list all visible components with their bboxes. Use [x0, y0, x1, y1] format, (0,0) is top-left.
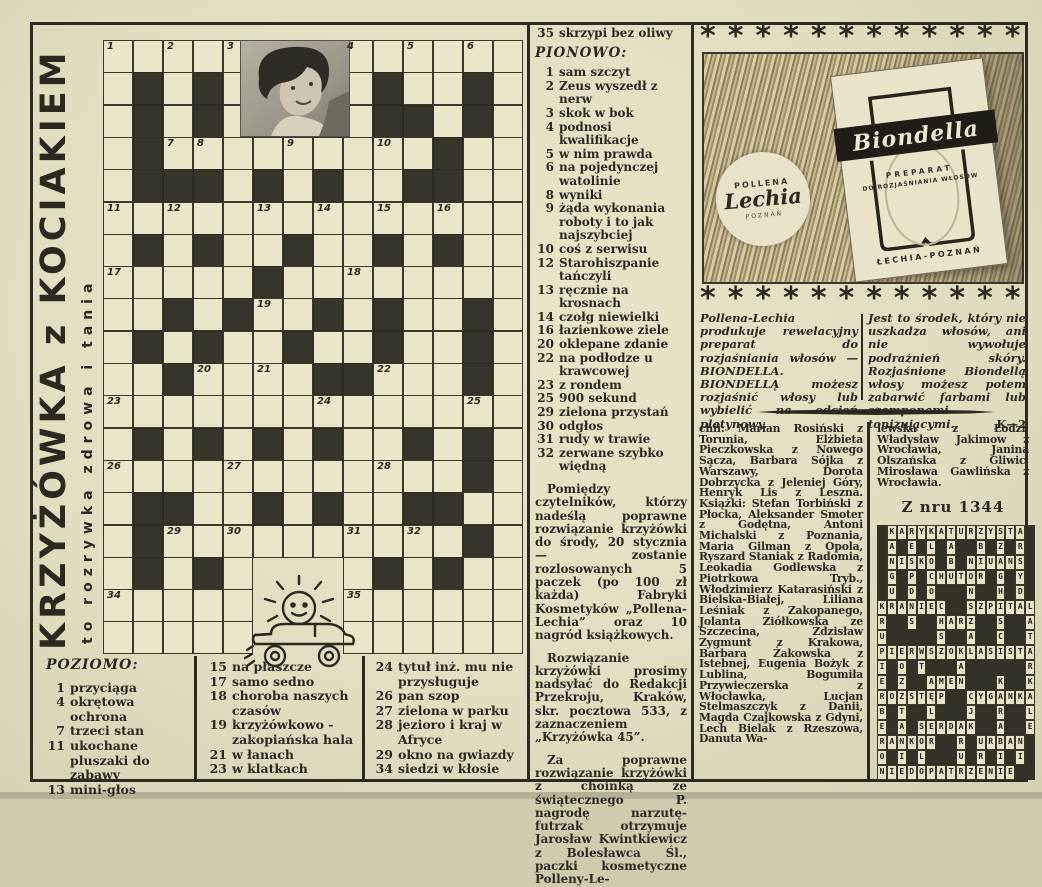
white-cell: [283, 492, 313, 525]
solution-letter-cell: K: [907, 735, 917, 750]
white-cell: [403, 557, 433, 590]
solution-black-cell: [926, 615, 936, 630]
clue-text: rudy w trawie: [559, 433, 687, 447]
white-cell: [313, 137, 343, 170]
solution-letter-cell: N: [1015, 735, 1025, 750]
solution-black-cell: [1015, 720, 1025, 735]
clue-item: 32zerwane szybko więdną: [535, 447, 687, 474]
black-cell: [133, 72, 163, 105]
solution-letter-cell: E: [926, 600, 936, 615]
cell-number: 19: [257, 300, 271, 310]
black-cell: [133, 428, 163, 461]
clue-item: 23w klatkach: [208, 762, 358, 777]
solution-black-cell: [986, 720, 996, 735]
clue-item: 8wyniki: [535, 189, 687, 203]
solution-letter-cell: C: [936, 600, 946, 615]
black-cell: [313, 428, 343, 461]
black-cell: [193, 72, 223, 105]
solution-letter-cell: L: [966, 645, 976, 660]
star-icon: *: [949, 19, 977, 54]
cell-number: 30: [227, 527, 241, 537]
black-cell: [343, 363, 373, 396]
black-cell: [253, 266, 283, 299]
white-cell: [343, 234, 373, 267]
solution-black-cell: [1015, 705, 1025, 720]
solution-black-cell: [907, 705, 917, 720]
solution-black-cell: [877, 525, 887, 540]
solution-letter-cell: S: [966, 600, 976, 615]
white-cell: [103, 428, 133, 461]
white-cell: [463, 557, 493, 590]
white-cell: [163, 621, 193, 654]
solution-black-cell: [946, 690, 956, 705]
solution-letter-cell: Z: [966, 615, 976, 630]
solution-black-cell: [946, 735, 956, 750]
clue-number: 23: [208, 762, 232, 777]
white-cell: [283, 298, 313, 331]
white-cell: [433, 331, 463, 364]
solution-black-cell: [1025, 525, 1035, 540]
solution-black-cell: [1005, 720, 1015, 735]
solution-row: UDONHD: [877, 585, 1035, 600]
white-cell: [133, 589, 163, 622]
cell-number: 3: [227, 42, 234, 52]
black-cell: [163, 363, 193, 396]
biondella-ad-photo: POLLENA Lechia POZNAŃ Biondella PREPARAT…: [702, 52, 1024, 284]
solution-black-cell: [917, 585, 927, 600]
white-cell: [343, 202, 373, 235]
solution-letter-cell: Z: [897, 690, 907, 705]
clue-text: łazienkowe ziele: [559, 324, 687, 338]
solution-letter-cell: O: [946, 645, 956, 660]
white-cell: [223, 363, 253, 396]
solution-letter-cell: R: [966, 525, 976, 540]
solution-black-cell: [986, 615, 996, 630]
white-cell: [193, 395, 223, 428]
title-subtitle: to rozrywka zdrowa i tania: [80, 50, 96, 650]
white-cell: [433, 525, 463, 558]
solution-black-cell: [897, 615, 907, 630]
star-icon: *: [728, 19, 756, 54]
solution-black-cell: [887, 630, 897, 645]
solution-letter-cell: O: [926, 585, 936, 600]
solution-letter-cell: A: [966, 630, 976, 645]
white-cell: [403, 137, 433, 170]
clue-text: choroba naszych czasów: [232, 689, 358, 718]
solution-black-cell: [976, 585, 986, 600]
black-cell: [133, 137, 163, 170]
clue-number: 1: [535, 66, 559, 80]
white-cell: [403, 621, 433, 654]
clue-item: 22na podłodze u krawcowej: [535, 352, 687, 379]
solution-black-cell: [966, 540, 976, 555]
clue-item: 27zielona w parku: [374, 704, 524, 719]
solution-letter-cell: A: [1015, 525, 1025, 540]
clue-text: okno na gwiazdy: [398, 748, 524, 763]
solution-letter-cell: Ę: [926, 690, 936, 705]
clue-item: 1sam szczyt: [535, 66, 687, 80]
clue-number: 15: [208, 660, 232, 675]
black-cell: [403, 428, 433, 461]
clue-text: zielona w parku: [398, 704, 524, 719]
solution-letter-cell: Z: [976, 525, 986, 540]
clue-text: ręcznie na krosnach: [559, 284, 687, 311]
solution-letter-cell: K: [956, 645, 966, 660]
white-cell: [163, 266, 193, 299]
black-cell: [373, 234, 403, 267]
solution-letter-cell: L: [926, 705, 936, 720]
solution-letter-cell: O: [877, 750, 887, 765]
black-cell: [193, 331, 223, 364]
pionowo-clues: 1sam szczyt2Zeus wyszedł z nerw3skok w b…: [535, 66, 687, 474]
clue-text: wyniki: [559, 189, 687, 203]
solution-letter-cell: E: [1005, 765, 1015, 780]
solution-row: KARYKATURZYSTA: [877, 525, 1035, 540]
star-icon: *: [811, 281, 839, 316]
solution-row: RANKORRURBAN: [877, 735, 1035, 750]
white-cell: [343, 395, 373, 428]
clue-number: 29: [374, 748, 398, 763]
black-cell: [463, 298, 493, 331]
cell-number: 35: [347, 591, 361, 601]
solution-black-cell: [1005, 540, 1015, 555]
solution-letter-cell: A: [996, 555, 1006, 570]
solution-letter-cell: R: [907, 645, 917, 660]
contest-paragraph: Pomiędzy czytelników, którzy nadeślą pop…: [535, 483, 687, 643]
solution-letter-cell: R: [907, 525, 917, 540]
solution-letter-cell: R: [956, 765, 966, 780]
white-cell: [403, 234, 433, 267]
clue-number: 18: [208, 689, 232, 718]
solution-black-cell: [956, 690, 966, 705]
solution-black-cell: [907, 630, 917, 645]
white-cell: [463, 589, 493, 622]
solution-letter-cell: A: [936, 765, 946, 780]
solution-letter-cell: K: [926, 525, 936, 540]
white-cell: [403, 72, 433, 105]
clue-number: 27: [374, 704, 398, 719]
white-cell: [373, 621, 403, 654]
clue-item: 31rudy w trawie: [535, 433, 687, 447]
solution-letter-cell: A: [996, 690, 1006, 705]
solution-letter-cell: A: [887, 735, 897, 750]
solution-letter-cell: U: [986, 555, 996, 570]
clue-number: 10: [535, 243, 559, 257]
solution-black-cell: [917, 570, 927, 585]
star-icon: *: [783, 19, 811, 54]
solution-letter-cell: A: [926, 675, 936, 690]
black-cell: [313, 169, 343, 202]
white-cell: [103, 169, 133, 202]
solution-row: ROZSTĘPCYGANKA: [877, 690, 1035, 705]
star-row-bottom: ************: [700, 286, 1026, 306]
title-main: KRZYŻÓWKA z KOCIAKIEM: [34, 50, 74, 650]
solution-black-cell: [966, 660, 976, 675]
cell-number: 20: [197, 365, 211, 375]
poziomo-last-clue: 35skrzypi bez oliwy: [535, 27, 687, 41]
solution-black-cell: [897, 585, 907, 600]
solution-letter-cell: E: [946, 675, 956, 690]
white-cell: [493, 525, 523, 558]
solution-letter-cell: D: [946, 720, 956, 735]
solution-letter-cell: Z: [996, 540, 1006, 555]
solution-letter-cell: N: [1005, 690, 1015, 705]
solution-row: IOTAR: [877, 660, 1035, 675]
cell-number: 21: [257, 365, 271, 375]
solution-letter-cell: N: [986, 765, 996, 780]
pionowo-heading: PIONOWO:: [535, 47, 687, 61]
cell-number: 34: [107, 591, 121, 601]
solution-letter-cell: W: [917, 645, 927, 660]
white-cell: [163, 395, 193, 428]
solution-black-cell: [936, 735, 946, 750]
black-cell: [253, 169, 283, 202]
solution-letter-cell: L: [926, 540, 936, 555]
white-cell: [253, 525, 283, 558]
solution-letter-cell: I: [996, 600, 1006, 615]
solution-letter-cell: A: [996, 720, 1006, 735]
solution-letter-cell: K: [1015, 690, 1025, 705]
white-cell: [403, 589, 433, 622]
solution-black-cell: [946, 630, 956, 645]
solution-black-cell: [917, 630, 927, 645]
black-cell: [163, 492, 193, 525]
white-cell: [103, 298, 133, 331]
clue-number: 31: [535, 433, 559, 447]
white-cell: [193, 525, 223, 558]
solution-letter-cell: S: [936, 630, 946, 645]
solution-row: NIEDOPATRZENIE: [877, 765, 1035, 780]
pionowo-column: 35skrzypi bez oliwy PIONOWO: 1sam szczyt…: [535, 27, 687, 887]
clue-item: 25900 sekund: [535, 392, 687, 406]
white-cell: [193, 202, 223, 235]
solution-black-cell: [887, 720, 897, 735]
solution-black-cell: [1015, 675, 1025, 690]
white-cell: [493, 395, 523, 428]
clue-item: 29zielona przystań: [535, 406, 687, 420]
solution-letter-cell: Y: [1015, 570, 1025, 585]
solution-black-cell: [976, 660, 986, 675]
black-cell: [463, 525, 493, 558]
clue-number: 14: [535, 311, 559, 325]
white-cell: [163, 234, 193, 267]
clue-text: żąda wykonania roboty i to jak najszybci…: [559, 202, 687, 243]
white-cell: [343, 492, 373, 525]
star-icon: *: [894, 19, 922, 54]
solution-black-cell: [986, 570, 996, 585]
clue-separator: [194, 656, 197, 782]
solution-letter-cell: Z: [897, 675, 907, 690]
solution-letter-cell: E: [877, 675, 887, 690]
solution-letter-cell: S: [996, 525, 1006, 540]
solution-letter-cell: A: [887, 540, 897, 555]
solution-letter-cell: N: [956, 675, 966, 690]
solution-black-cell: [1015, 660, 1025, 675]
solution-letter-cell: E: [907, 540, 917, 555]
solution-black-cell: [986, 750, 996, 765]
white-cell: [493, 363, 523, 396]
white-cell: [223, 266, 253, 299]
black-cell: [193, 234, 223, 267]
white-cell: [283, 395, 313, 428]
white-cell: [373, 589, 403, 622]
solution-black-cell: [1005, 705, 1015, 720]
solution-letter-cell: I: [1015, 750, 1025, 765]
cell-number: 27: [227, 462, 241, 472]
solution-black-cell: [917, 540, 927, 555]
cell-number: 31: [347, 527, 361, 537]
solution-letter-cell: K: [917, 555, 927, 570]
solution-letter-cell: G: [996, 570, 1006, 585]
clue-item: 29okno na gwiazdy: [374, 748, 524, 763]
clue-text: skok w bok: [559, 107, 687, 121]
cell-number: 18: [347, 268, 361, 278]
solution-black-cell: [887, 615, 897, 630]
white-cell: [433, 460, 463, 493]
black-cell: [133, 557, 163, 590]
white-cell: [373, 40, 403, 73]
solution-letter-cell: I: [887, 645, 897, 660]
solution-letter-cell: R: [996, 705, 1006, 720]
white-cell: [403, 460, 433, 493]
solution-row: NISKOBNIUANS: [877, 555, 1035, 570]
white-cell: [373, 428, 403, 461]
white-cell: [193, 460, 223, 493]
black-cell: [193, 105, 223, 138]
solution-letter-cell: U: [887, 585, 897, 600]
white-cell: [103, 72, 133, 105]
solution-black-cell: [956, 705, 966, 720]
solution-letter-cell: O: [966, 570, 976, 585]
cell-number: 8: [197, 139, 204, 149]
white-cell: [343, 298, 373, 331]
solution-letter-cell: B: [877, 705, 887, 720]
solution-letter-cell: T: [1015, 645, 1025, 660]
white-cell: [163, 428, 193, 461]
solution-letter-cell: S: [907, 615, 917, 630]
star-icon: *: [839, 19, 867, 54]
pollena-lechia-logo: POLLENA Lechia POZNAŃ: [712, 148, 814, 250]
solution-letter-cell: R: [986, 735, 996, 750]
solution-black-cell: [1025, 735, 1035, 750]
cell-number: 2: [167, 42, 174, 52]
cell-number: 25: [467, 397, 481, 407]
clue-text: tytuł inż. mu nie przysługuje: [398, 660, 524, 689]
black-cell: [283, 234, 313, 267]
clue-separator: [362, 656, 365, 782]
white-cell: [493, 169, 523, 202]
white-cell: [373, 525, 403, 558]
white-cell: [283, 525, 313, 558]
solution-black-cell: [1015, 765, 1025, 780]
black-cell: [313, 298, 343, 331]
cell-number: 5: [407, 42, 414, 52]
white-cell: [373, 266, 403, 299]
solution-black-cell: [1005, 675, 1015, 690]
white-cell: [493, 428, 523, 461]
poziomo-column-1: POZIOMO: 1przyciąga4okrętowa ochrona7trz…: [46, 658, 192, 797]
cell-number: 28: [377, 462, 391, 472]
prize-paragraph: Za poprawne rozwiązanie krzyżówki z choi…: [535, 754, 687, 887]
white-cell: [433, 395, 463, 428]
solution-black-cell: [887, 750, 897, 765]
clue-number: 4: [46, 695, 70, 724]
white-cell: [253, 460, 283, 493]
solution-letter-cell: R: [1015, 540, 1025, 555]
solution-black-cell: [956, 600, 966, 615]
solution-black-cell: [986, 540, 996, 555]
star-icon: *: [1005, 19, 1033, 54]
clue-text: na podłodze u krawcowej: [559, 352, 687, 379]
white-cell: [283, 428, 313, 461]
white-cell: [313, 331, 343, 364]
solution-letter-cell: S: [926, 645, 936, 660]
solution-black-cell: [887, 675, 897, 690]
solution-letter-cell: R: [956, 735, 966, 750]
solution-black-cell: [1005, 660, 1015, 675]
white-cell: [373, 395, 403, 428]
white-cell: [433, 621, 463, 654]
white-cell: [253, 137, 283, 170]
cell-number: 29: [167, 527, 181, 537]
clue-text: skrzypi bez oliwy: [559, 27, 687, 41]
star-icon: *: [977, 19, 1005, 54]
solution-letter-cell: C: [996, 630, 1006, 645]
solution-letter-cell: A: [897, 600, 907, 615]
solution-letter-cell: H: [996, 585, 1006, 600]
white-cell: [223, 395, 253, 428]
white-cell: [463, 202, 493, 235]
solution-letter-cell: I: [996, 765, 1006, 780]
poziomo-heading: POZIOMO:: [46, 658, 192, 673]
clue-number: 19: [208, 718, 232, 747]
solution-black-cell: [907, 720, 917, 735]
solution-letter-cell: I: [996, 645, 1006, 660]
clue-text: coś z serwisu: [559, 243, 687, 257]
solution-letter-cell: S: [907, 555, 917, 570]
solution-letter-cell: A: [1005, 735, 1015, 750]
white-cell: [433, 428, 463, 461]
star-icon: *: [755, 19, 783, 54]
white-cell: [373, 169, 403, 202]
white-cell: [283, 266, 313, 299]
white-cell: [283, 202, 313, 235]
solution-black-cell: [1025, 540, 1035, 555]
solution-black-cell: [926, 630, 936, 645]
solution-heading: Z nru 1344: [877, 502, 1029, 513]
solution-black-cell: [1015, 630, 1025, 645]
solution-letter-cell: T: [1005, 600, 1015, 615]
solution-letter-cell: A: [1025, 615, 1035, 630]
solution-letter-cell: H: [936, 570, 946, 585]
solution-letter-cell: S: [986, 645, 996, 660]
solution-black-cell: [877, 570, 887, 585]
solution-letter-cell: R: [877, 735, 887, 750]
cell-number: 32: [407, 527, 421, 537]
solution-black-cell: [976, 720, 986, 735]
solution-letter-cell: I: [897, 750, 907, 765]
black-cell: [403, 105, 433, 138]
cell-number: 26: [107, 462, 121, 472]
solution-row: EZAMENKK: [877, 675, 1035, 690]
cell-number: 9: [287, 139, 294, 149]
solution-black-cell: [1025, 765, 1035, 780]
solution-black-cell: [936, 660, 946, 675]
solution-letter-cell: C: [926, 570, 936, 585]
white-cell: [493, 266, 523, 299]
solution-letter-cell: S: [917, 720, 927, 735]
solution-black-cell: [976, 705, 986, 720]
